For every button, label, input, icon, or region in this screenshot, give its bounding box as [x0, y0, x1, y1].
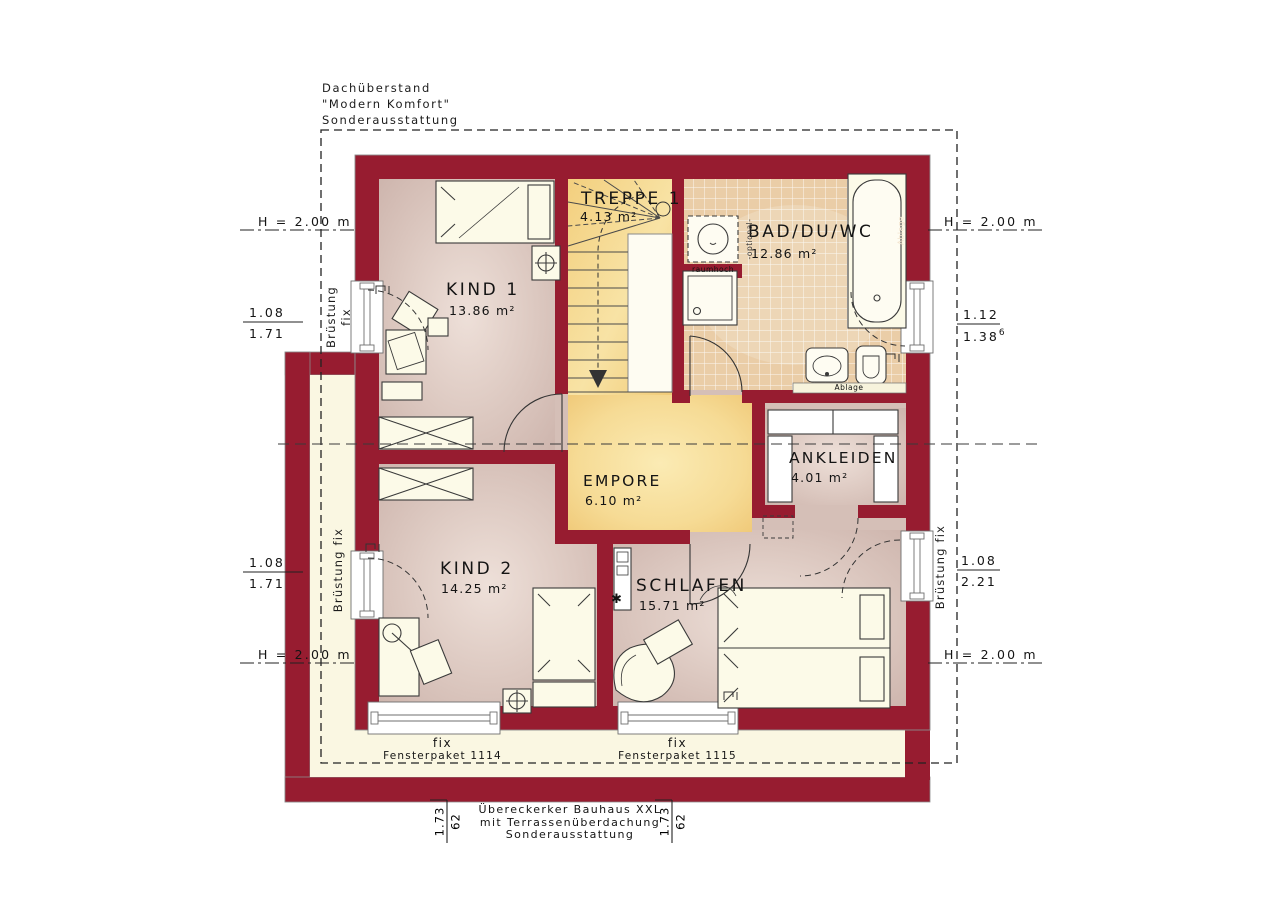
- area-label-empore: 6.10 m²: [585, 493, 642, 508]
- wardrobe-kind2: [379, 468, 473, 500]
- room-label-ankleiden: ANKLEIDEN: [789, 449, 898, 467]
- height-right-top: H = 2.00 m: [944, 214, 1038, 229]
- room-label-treppe: TREPPE 1: [581, 189, 682, 209]
- sill-label-left-bottom: Brüstung fix: [331, 525, 345, 615]
- room-label-kind2: KIND 2: [440, 559, 514, 579]
- star-symbol: ✱: [611, 592, 622, 607]
- washer-optional: [688, 216, 738, 262]
- roof-note: Dachüberstand "Modern Komfort" Sonderaus…: [322, 80, 459, 128]
- fix-label-2: fix: [610, 736, 745, 750]
- nightstand-kind1: [532, 246, 560, 280]
- area-label-kind1: 13.86 m²: [449, 303, 516, 318]
- bed-kind1: [436, 181, 554, 243]
- marker-kind2: [503, 689, 531, 713]
- window-left-bottom: [351, 551, 383, 619]
- dim-bottom-left-b: 62: [449, 810, 462, 834]
- roof-note-line3: Sonderausstattung: [322, 112, 459, 128]
- dim-bottom-right-b: 62: [674, 810, 687, 834]
- area-label-ankleiden: 4.01 m²: [791, 470, 848, 485]
- double-bed: [700, 586, 890, 708]
- window-package-2: fix Fensterpaket 1115: [610, 736, 745, 762]
- den-value: 1.38: [963, 329, 999, 344]
- floor-empore: [568, 395, 752, 532]
- height-right-bottom: H = 2.00 m: [944, 647, 1038, 662]
- optional-label: -optional-: [744, 213, 754, 265]
- window-package-1: fix Fensterpaket 1114: [375, 736, 510, 762]
- bed-kind2: [533, 588, 595, 707]
- area-label-treppe: 4.13 m²: [580, 209, 637, 224]
- win-dim-left-bottom-den: 1.71: [249, 576, 285, 591]
- washbasin: [806, 348, 848, 382]
- ablage-bottom-label: Ablage: [819, 383, 879, 392]
- win-dim-left-top-num: 1.08: [249, 305, 285, 320]
- room-label-empore: EMPORE: [583, 472, 661, 490]
- win-dim-left-top-den: 1.71: [249, 326, 285, 341]
- dim-bottom-right-a: 1.73: [658, 804, 671, 840]
- win-dim-right-bottom-num: 1.08: [961, 553, 997, 568]
- roof-note-line1: Dachüberstand: [322, 80, 459, 96]
- package-label-2: Fensterpaket 1115: [610, 750, 745, 762]
- win-dim-right-top-num: 1.12: [963, 307, 999, 322]
- toilet: [856, 346, 886, 384]
- roof-note-line2: "Modern Komfort": [322, 96, 459, 112]
- area-label-bad: 12.86 m²: [751, 246, 818, 261]
- window-bottom-1: [368, 702, 500, 734]
- sill-label-left-top: Brüstung fix: [322, 280, 356, 354]
- fix-label-1: fix: [375, 736, 510, 750]
- ablage-side-label: Ablage: [897, 209, 906, 253]
- sill-label-right-bottom: Brüstung fix: [933, 522, 947, 612]
- dim-bottom-left-a: 1.73: [433, 804, 446, 840]
- shower: [683, 271, 737, 325]
- win-dim-left-bottom-num: 1.08: [249, 555, 285, 570]
- win-dim-right-top-den: 1.386: [963, 328, 1005, 344]
- floorplan-drawing: [0, 0, 1280, 906]
- height-left-bottom: H = 2.00 m: [258, 647, 352, 662]
- window-right-bottom: [901, 531, 933, 601]
- area-label-schlafen: 15.71 m²: [639, 598, 706, 613]
- den-sup: 6: [999, 328, 1005, 338]
- room-label-bad: BAD/DU/WC: [748, 222, 873, 242]
- room-label-schlafen: SCHLAFEN: [636, 576, 747, 596]
- room-label-kind1: KIND 1: [446, 280, 520, 300]
- win-dim-right-bottom-den: 2.21: [961, 574, 997, 589]
- area-label-kind2: 14.25 m²: [441, 581, 508, 596]
- raumhoch-label: raumhoch: [684, 265, 742, 274]
- package-label-1: Fensterpaket 1114: [375, 750, 510, 762]
- floorplan-page: Dachüberstand "Modern Komfort" Sonderaus…: [0, 0, 1280, 906]
- height-left-top: H = 2.00 m: [258, 214, 352, 229]
